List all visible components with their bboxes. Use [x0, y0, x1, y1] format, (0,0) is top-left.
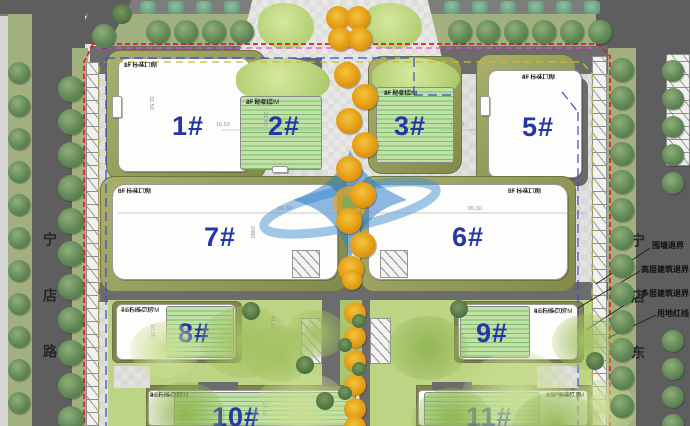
building-9-number: 9# — [476, 320, 508, 347]
parking-strip-west — [86, 62, 99, 426]
tree-icon — [58, 340, 84, 366]
tree-icon — [610, 198, 634, 222]
parking-stalls-2 — [380, 250, 408, 278]
orange-tree-icon — [342, 270, 362, 290]
tree-icon — [532, 20, 556, 44]
tree-icon — [352, 362, 366, 376]
dim-630: 630 — [218, 46, 224, 55]
tree-icon — [296, 356, 314, 374]
orange-tree-icon — [334, 62, 360, 88]
tree-icon — [610, 58, 634, 82]
tree-icon — [338, 386, 352, 400]
tree-icon — [556, 1, 572, 14]
tree-icon — [662, 116, 684, 138]
tree-icon — [58, 76, 84, 102]
tree-icon — [610, 226, 634, 250]
tree-icon — [610, 338, 634, 362]
setback-label-wall: 围墙退界 — [652, 240, 684, 251]
tree-icon — [58, 175, 84, 201]
building-2-number: 2# — [268, 113, 300, 140]
parking-strip-east — [592, 56, 607, 426]
building-3-number: 3# — [394, 113, 426, 140]
tree-icon — [610, 254, 634, 278]
building-6-number: 6# — [452, 224, 484, 251]
tree-icon — [58, 109, 84, 135]
tree-icon — [450, 300, 468, 318]
orange-tree-icon — [350, 182, 376, 208]
tree-icon — [504, 20, 528, 44]
tree-icon — [588, 20, 612, 44]
building-7-number: 7# — [204, 224, 236, 251]
tree-icon — [662, 330, 684, 352]
tree-icon — [196, 1, 212, 14]
tree-icon — [58, 241, 84, 267]
dim-15-50: 15.50 — [450, 122, 464, 128]
tree-icon — [8, 227, 30, 249]
tree-icon — [610, 394, 634, 418]
building-5-number: 5# — [522, 114, 554, 141]
tree-icon — [352, 314, 366, 328]
tree-icon — [444, 1, 460, 14]
setback-label-redline: 用地红线 — [657, 308, 689, 319]
dim-31-50: 31.50 — [148, 96, 154, 110]
tree-icon — [610, 310, 634, 334]
tree-icon — [662, 60, 684, 82]
tree-icon — [58, 307, 84, 333]
orange-tree-icon — [352, 84, 378, 110]
tree-icon — [58, 373, 84, 399]
tree-icon — [92, 24, 116, 48]
tree-icon — [586, 352, 604, 370]
tree-icon — [8, 95, 30, 117]
tree-icon — [58, 142, 84, 168]
tree-icon — [8, 194, 30, 216]
tree-icon — [146, 20, 170, 44]
orange-tree-icon — [350, 232, 376, 258]
orange-tree-icon — [352, 132, 378, 158]
lawn-texture — [388, 316, 468, 380]
tree-icon — [662, 386, 684, 408]
tree-icon — [476, 20, 500, 44]
tree-icon — [168, 1, 184, 14]
dim-15-53: 15.53 — [216, 122, 230, 128]
tree-icon — [560, 20, 584, 44]
tree-icon — [500, 1, 516, 14]
dim-65-30-b: 65.30 — [468, 206, 482, 212]
site-plan: 1# 2# 3# 5# 6# 7# 8# 9# 11# 10# 1# 标准厂房8… — [0, 0, 690, 426]
tree-icon — [610, 282, 634, 306]
tree-icon — [112, 4, 132, 24]
dim-2460-a: 2460 — [249, 226, 255, 238]
tree-icon — [610, 170, 634, 194]
tree-icon — [8, 128, 30, 150]
tree-icon — [242, 302, 260, 320]
tree-icon — [8, 392, 30, 414]
tree-icon — [448, 20, 472, 44]
tree-icon — [662, 88, 684, 110]
tree-icon — [8, 62, 30, 84]
tree-icon — [338, 338, 352, 352]
tree-icon — [610, 114, 634, 138]
tree-icon — [140, 1, 156, 14]
tree-icon — [472, 1, 488, 14]
street-name-left: 宁店路 — [40, 232, 60, 422]
tree-icon — [8, 359, 30, 381]
building-5-entry — [480, 96, 490, 116]
tree-icon — [610, 142, 634, 166]
tree-icon — [662, 172, 684, 194]
tree-icon — [174, 20, 198, 44]
tree-icon — [8, 161, 30, 183]
tree-icon — [8, 260, 30, 282]
lawn-texture — [130, 322, 200, 378]
building-1-entry — [112, 96, 122, 118]
setback-label-highrise: 高层建筑退界 — [641, 264, 689, 275]
dim-65-30-a: 65.30 — [278, 206, 292, 212]
tree-icon — [8, 293, 30, 315]
setback-label-multistory: 多层建筑退界 — [641, 288, 689, 299]
building-1-number: 1# — [172, 113, 204, 140]
tree-icon — [662, 144, 684, 166]
tree-icon — [58, 406, 84, 426]
tree-icon — [662, 358, 684, 380]
orange-tree-icon — [336, 208, 362, 234]
orange-tree-icon — [336, 108, 362, 134]
tree-icon — [584, 1, 600, 14]
tree-icon — [230, 20, 254, 44]
parking-stalls-1 — [292, 250, 320, 278]
tree-icon — [58, 274, 84, 300]
tree-icon — [316, 392, 334, 410]
tree-icon — [528, 1, 544, 14]
right-intersection — [596, 0, 690, 48]
entrance-planter-left — [258, 3, 314, 49]
tree-icon — [610, 86, 634, 110]
tree-icon — [610, 366, 634, 390]
building-2-entry — [272, 166, 288, 173]
tree-icon — [8, 326, 30, 348]
orange-tree-icon — [348, 27, 372, 51]
dim-21-60: 21.60 — [262, 112, 268, 126]
tree-icon — [202, 20, 226, 44]
tree-icon — [58, 208, 84, 234]
orange-tree-icon — [336, 156, 362, 182]
tree-icon — [224, 1, 240, 14]
